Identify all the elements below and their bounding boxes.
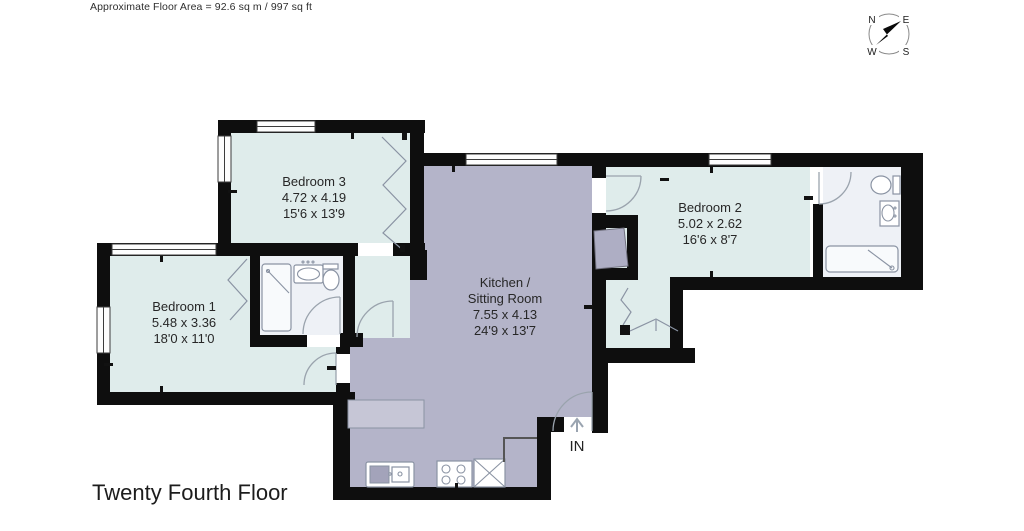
compass-icon: N E W S (865, 13, 913, 58)
room-label-bedroom1-name: Bedroom 1 (152, 299, 216, 314)
compass-south-label: S (903, 47, 910, 58)
window (257, 121, 315, 132)
compass-north-label: N (868, 15, 875, 26)
room-label-bedroom3-metric: 4.72 x 4.19 (282, 190, 346, 205)
hob-icon (437, 461, 472, 487)
shower-icon (262, 264, 291, 331)
window (466, 154, 557, 165)
floor-plan-svg: IN Bedroom 3 4.72 x 4.19 15'6 x 13'9 Bed… (0, 0, 1024, 531)
window (97, 307, 110, 353)
compass-needle-icon (876, 21, 901, 45)
room-label-bedroom2-metric: 5.02 x 2.62 (678, 216, 742, 231)
window (112, 244, 216, 255)
window (709, 154, 771, 165)
room-label-bedroom3-name: Bedroom 3 (282, 174, 346, 189)
compass-east-label: E (903, 15, 910, 26)
hallway-nook-floor (355, 256, 410, 338)
room-label-kitchen-imperial: 24'9 x 13'7 (474, 323, 536, 338)
closet-cupboard (594, 228, 628, 269)
room-label-kitchen-metric: 7.55 x 4.13 (473, 307, 537, 322)
room-label-bedroom2-name: Bedroom 2 (678, 200, 742, 215)
toilet-icon (871, 176, 900, 194)
appliance-icon (474, 459, 505, 487)
room-label-bedroom1-metric: 5.48 x 3.36 (152, 315, 216, 330)
floor-title: Twenty Fourth Floor (92, 480, 288, 506)
kitchen-sink-icon (366, 462, 414, 487)
room-label-bedroom3-imperial: 15'6 x 13'9 (283, 206, 345, 221)
room-label-bedroom2-imperial: 16'6 x 8'7 (683, 232, 738, 247)
sink-icon (880, 201, 899, 226)
compass-west-label: W (867, 47, 877, 58)
shower-icon (826, 246, 898, 272)
kitchen-counter (348, 400, 424, 428)
entrance-arrow-icon (571, 419, 583, 432)
entrance-label: IN (570, 438, 585, 455)
room-label-bedroom1-imperial: 18'0 x 11'0 (153, 331, 214, 346)
window (218, 136, 231, 182)
toilet-icon (323, 264, 339, 290)
floorplan-page: Approximate Floor Area = 92.6 sq m / 997… (0, 0, 1024, 531)
room-label-kitchen-name2: Sitting Room (468, 291, 542, 306)
entrance: IN (570, 419, 585, 455)
room-label-kitchen-name1: Kitchen / (480, 275, 531, 290)
